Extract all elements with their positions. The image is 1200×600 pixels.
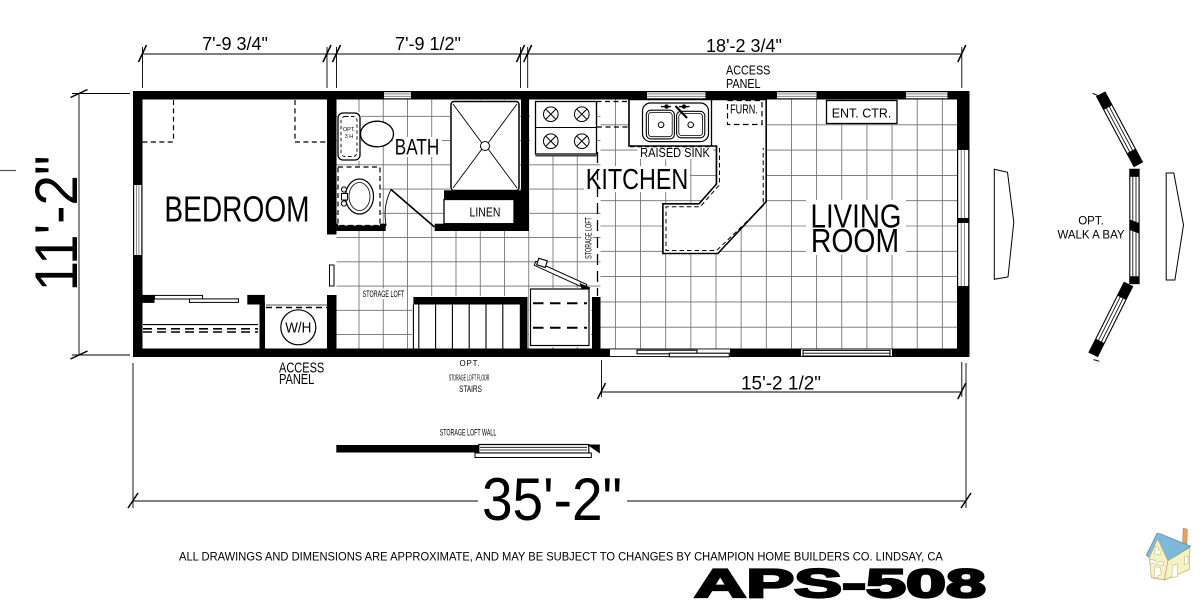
svg-text:APS-508: APS-508 bbox=[694, 562, 986, 600]
svg-text:STAIRS: STAIRS bbox=[459, 384, 482, 394]
svg-text:BATH: BATH bbox=[395, 136, 439, 161]
svg-text:KITCHEN: KITCHEN bbox=[586, 163, 689, 196]
svg-text:OPT.: OPT. bbox=[343, 127, 356, 133]
svg-text:STORAGE LOFT: STORAGE LOFT bbox=[363, 288, 405, 299]
svg-text:OPT.: OPT. bbox=[460, 359, 481, 368]
svg-text:ENT. CTR.: ENT. CTR. bbox=[832, 105, 892, 120]
svg-text:FURN.: FURN. bbox=[730, 103, 758, 117]
svg-text:18'-2 3/4": 18'-2 3/4" bbox=[706, 36, 782, 56]
svg-text:BEDROOM: BEDROOM bbox=[164, 189, 309, 229]
svg-text:STORAGE LOFT: STORAGE LOFT bbox=[583, 217, 594, 259]
svg-text:WALK A BAY: WALK A BAY bbox=[1057, 230, 1124, 242]
svg-text:LINEN: LINEN bbox=[470, 207, 501, 220]
svg-text:STORAGE LOFT FLOOR: STORAGE LOFT FLOOR bbox=[449, 374, 490, 383]
svg-text:3 H: 3 H bbox=[345, 134, 354, 140]
svg-text:ROOM: ROOM bbox=[811, 222, 899, 260]
svg-text:PANEL: PANEL bbox=[279, 370, 314, 387]
svg-text:15'-2 1/2": 15'-2 1/2" bbox=[741, 374, 821, 395]
svg-text:STORAGE LOFT WALL: STORAGE LOFT WALL bbox=[440, 427, 497, 438]
svg-text:7'-9 1/2": 7'-9 1/2" bbox=[395, 34, 461, 54]
svg-text:RAISED SINK: RAISED SINK bbox=[640, 146, 710, 160]
svg-text:OPT.: OPT. bbox=[1078, 216, 1104, 228]
svg-text:7'-9 3/4": 7'-9 3/4" bbox=[202, 34, 268, 54]
svg-text:11'-2": 11'-2" bbox=[24, 156, 91, 292]
svg-text:W/H: W/H bbox=[285, 320, 311, 337]
svg-text:PANEL: PANEL bbox=[726, 76, 761, 91]
svg-text:35'-2": 35'-2" bbox=[482, 467, 622, 534]
